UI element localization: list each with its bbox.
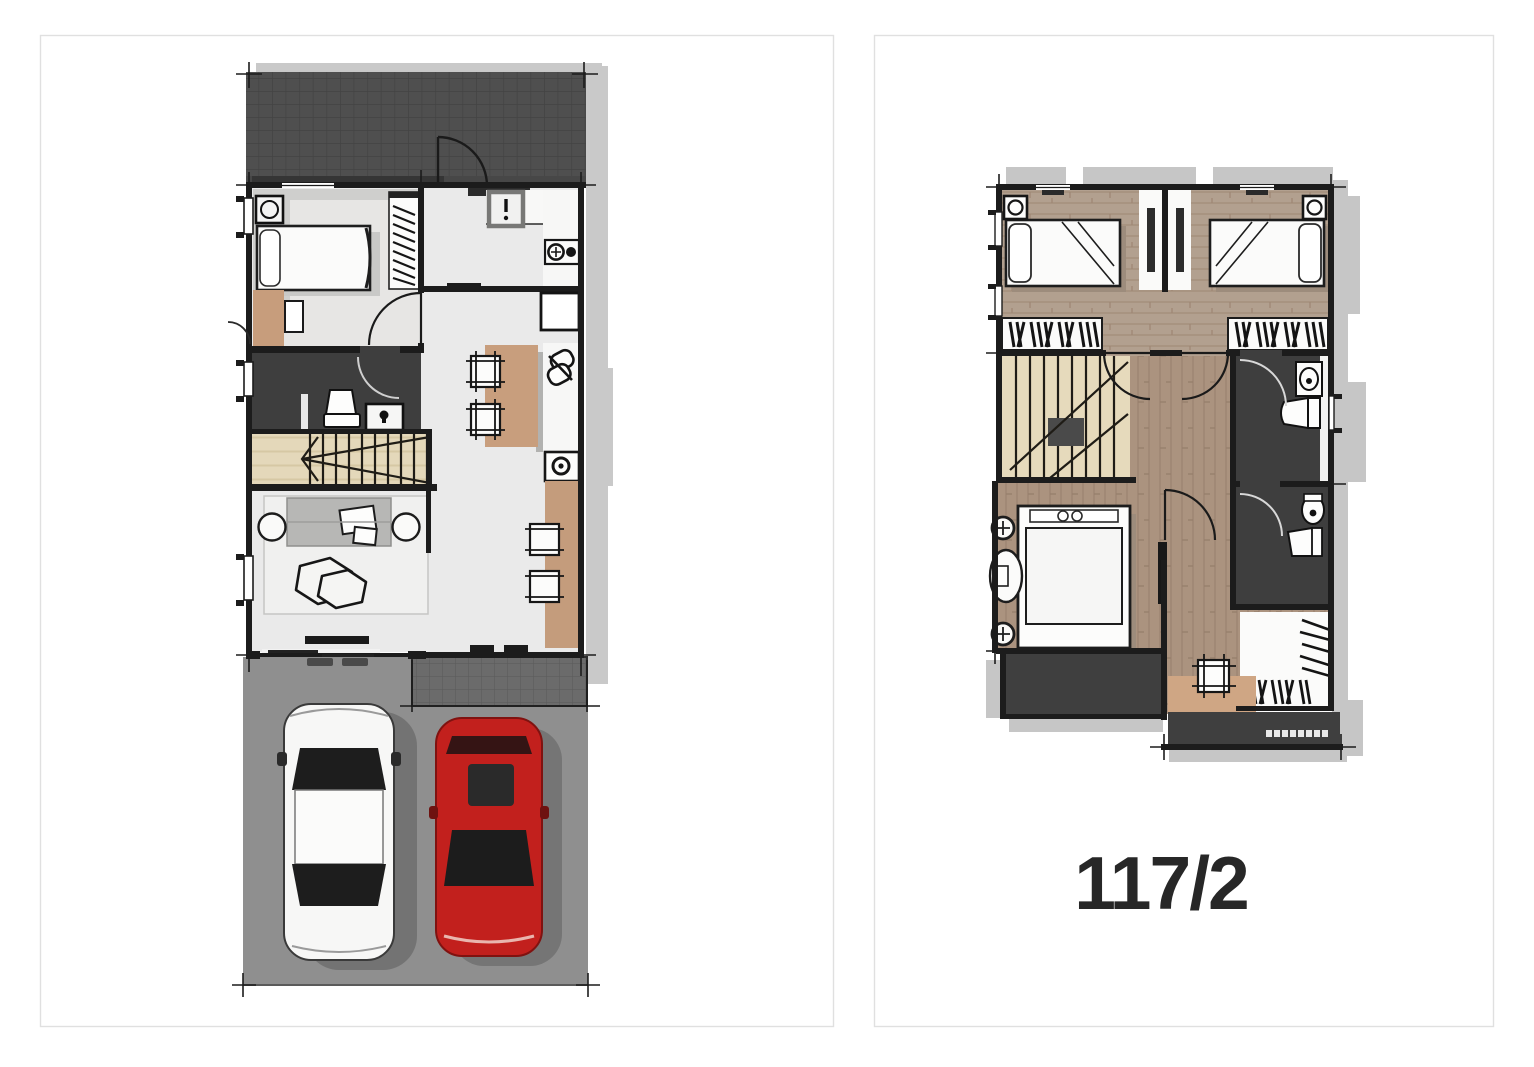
svg-text:117/2: 117/2: [1074, 841, 1248, 925]
